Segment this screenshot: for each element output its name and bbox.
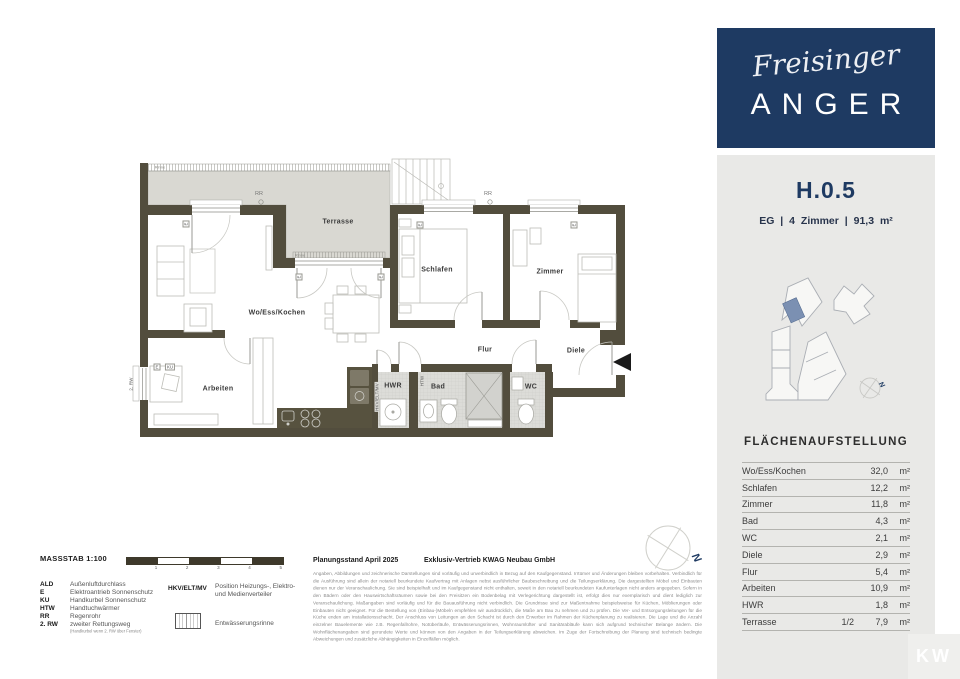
- site-building: [766, 326, 798, 400]
- table-row: Diele2,9m²: [742, 547, 910, 564]
- legend-item: RRRegenrohr: [40, 613, 153, 621]
- rinne-label: Rinne: [155, 165, 165, 170]
- room-label-bad: Bad: [431, 384, 445, 391]
- room-label-wc: WC: [525, 384, 537, 391]
- unit-info-panel: H.0.5 EG | 4 Zimmer | 91,3 m² N FLÄCHENA…: [717, 155, 935, 679]
- table-row: Schlafen12,2m²: [742, 480, 910, 497]
- scale-ticks: 12345: [126, 566, 282, 571]
- drainage-channel-description: Entwässerungsrinne: [215, 620, 274, 627]
- legend-item: KUHandkurbel Sonnenschutz: [40, 597, 153, 605]
- sunshade-e-label: E: [417, 222, 424, 229]
- sunshade-e-label: E: [571, 222, 578, 229]
- table-row: Zimmer11,8m²: [742, 497, 910, 514]
- abbreviation-legend: ALDAußenluftdurchlass EElektroantrieb So…: [40, 581, 153, 629]
- drainage-channel-symbol: [175, 613, 201, 629]
- room-label-hwr: HWR: [384, 383, 402, 390]
- site-building: [834, 284, 874, 324]
- rr-label: RR: [484, 191, 492, 197]
- svg-text:N: N: [689, 552, 704, 566]
- room-label-zimmer: Zimmer: [536, 269, 563, 276]
- floor-plan-drawing: [120, 150, 665, 450]
- rr-label: RR: [255, 191, 263, 197]
- table-row: HWR1,8m²: [742, 597, 910, 614]
- room-label-diele: Diele: [567, 348, 585, 355]
- table-row: Bad4,3m²: [742, 513, 910, 530]
- drainage-channel: [148, 164, 390, 171]
- floorplan-sheet: { "brand": { "script": "Freisinger", "ca…: [0, 0, 960, 679]
- legend-item: 2. RWzweiter Rettungsweg: [40, 621, 153, 629]
- kitchen-counter: [277, 367, 372, 428]
- sunshade-e-label: E: [183, 221, 190, 228]
- sales-contact: Exklusiv-Vertrieb KWAG Neubau GmbH: [424, 557, 555, 564]
- unit-subtitle: EG | 4 Zimmer | 91,3 m²: [717, 215, 935, 227]
- htw-label: HTW: [420, 376, 425, 387]
- legend-item: ALDAußenluftdurchlass: [40, 581, 153, 589]
- sunshade-e-label: E: [296, 274, 303, 281]
- exterior-stair: [392, 159, 450, 204]
- table-row: Terrasse1/27,9m²: [742, 614, 910, 631]
- drainage-channel: [293, 252, 385, 258]
- kwag-watermark-logo: KW: [908, 634, 960, 679]
- scale-label: MASSSTAB 1:100: [40, 554, 107, 563]
- sunshade-e-label: E: [378, 274, 385, 281]
- sunshade-ku-label: KU: [165, 364, 175, 371]
- rainpipe-icon: [488, 200, 492, 204]
- planning-status: Planungsstand April 2025: [313, 557, 398, 564]
- legend-note: (Handkurbel wenn 2. RW über Fenster): [70, 629, 141, 634]
- room-label-terrasse: Terrasse: [322, 219, 353, 226]
- scale-bar: [126, 557, 284, 565]
- entrance-arrow-icon: [613, 353, 631, 371]
- hkv-description: Position Heizungs-, Elektro- und Medienv…: [215, 583, 297, 599]
- brand-script-logo: Freisinger: [716, 35, 936, 87]
- rinne-label: Rinne: [295, 253, 305, 258]
- area-table-title: FLÄCHENAUFSTELLUNG: [717, 436, 935, 448]
- escape-route-label: 2. RW: [129, 377, 134, 390]
- room-label-arbeiten: Arbeiten: [203, 386, 234, 393]
- site-plan-map: N: [742, 250, 912, 410]
- legend-item: EElektroantrieb Sonnenschutz: [40, 589, 153, 597]
- legal-disclaimer: Angaben, Abbildungen und zeichnerische D…: [313, 571, 702, 644]
- unit-title: H.0.5: [717, 177, 935, 204]
- room-label-flur: Flur: [478, 347, 492, 354]
- legend-item: HTWHandtuchwärmer: [40, 605, 153, 613]
- brand-banner: Freisinger ANGER: [717, 28, 935, 148]
- brand-caps-logo: ANGER: [717, 88, 935, 122]
- area-table: Wo/Ess/Kochen32,0m² Schlafen12,2m² Zimme…: [742, 462, 910, 631]
- room-label-schlafen: Schlafen: [421, 267, 453, 274]
- room-label-wohnen: Wo/Ess/Kochen: [249, 310, 306, 317]
- hkv-abbreviation: HKV/ELT/MV: [168, 585, 207, 592]
- table-row: Wo/Ess/Kochen32,0m²: [742, 463, 910, 480]
- sunshade-e-label: E: [154, 364, 161, 371]
- hkv-label: HKV/ELT/MV: [375, 382, 380, 412]
- table-row: Arbeiten10,9m²: [742, 581, 910, 598]
- site-building: [798, 332, 846, 400]
- table-row: WC2,1m²: [742, 530, 910, 547]
- table-row: Flur5,4m²: [742, 564, 910, 581]
